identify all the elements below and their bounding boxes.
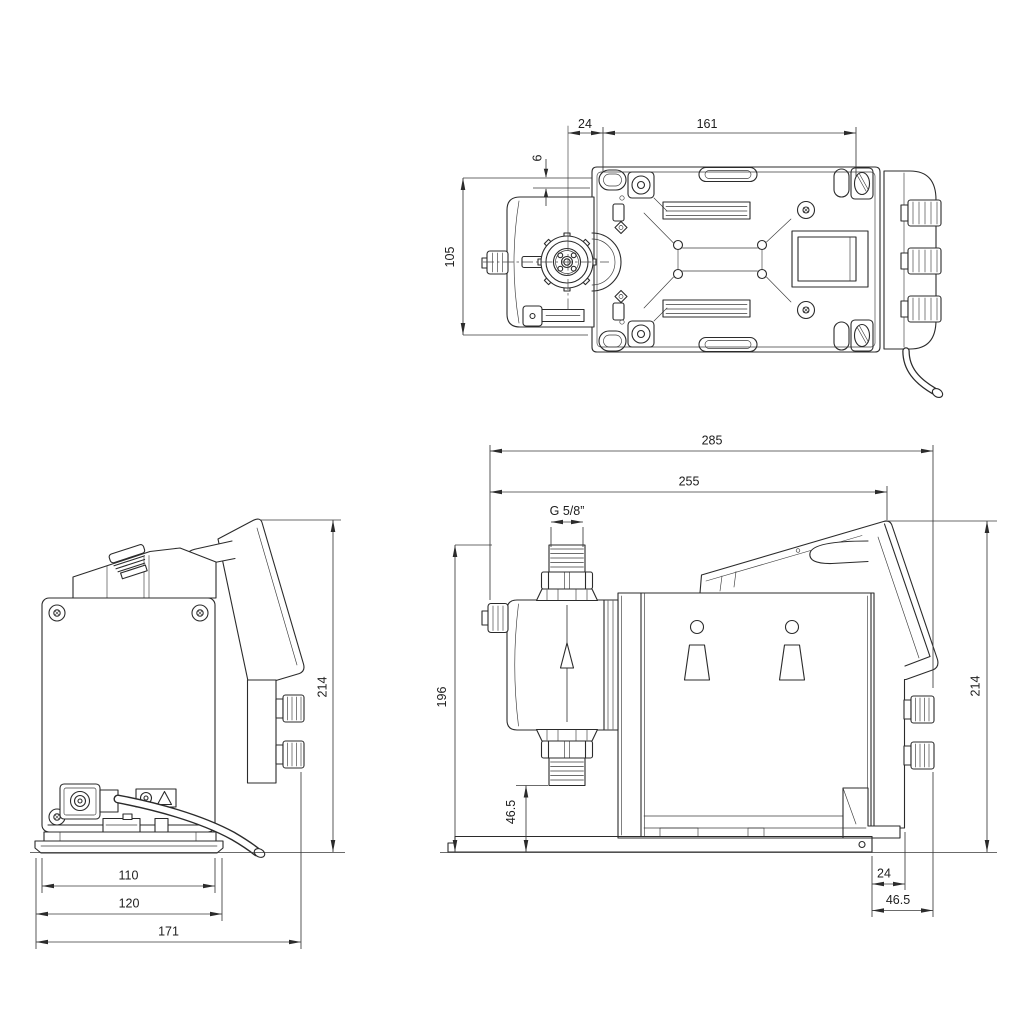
dim-214-side-label: 214 bbox=[969, 676, 983, 697]
thread-size-label: G 5/8” bbox=[550, 504, 585, 518]
signal-connector-caps bbox=[901, 200, 941, 322]
top-view: 24 161 6 105 bbox=[443, 117, 944, 399]
pump-dimensional-drawing: 24 161 6 105 bbox=[0, 0, 1024, 1024]
dosing-head bbox=[482, 545, 618, 786]
mounting-plate bbox=[592, 167, 880, 352]
pump-body bbox=[618, 593, 871, 838]
dim-171-label: 171 bbox=[158, 925, 179, 939]
dim-24-side-label: 24 bbox=[877, 867, 891, 881]
deaeration-valve-knob bbox=[482, 604, 508, 633]
suction-fitting bbox=[537, 730, 598, 786]
dim-214-back-label: 214 bbox=[316, 677, 330, 698]
dim-161-label: 161 bbox=[697, 117, 718, 131]
dim-24-label: 24 bbox=[578, 117, 592, 131]
signal-connectors-side bbox=[904, 696, 934, 769]
dim-255-label: 255 bbox=[679, 475, 700, 489]
control-panel-edge bbox=[884, 171, 941, 349]
dim-46-5-side-label: 46.5 bbox=[886, 893, 910, 907]
technical-drawing-page: 24 161 6 105 bbox=[0, 0, 1024, 1024]
discharge-fitting bbox=[537, 545, 598, 601]
dim-110-label: 110 bbox=[119, 869, 139, 883]
side-view: 285 255 G 5/8” 196 46.5 214 24 46.5 bbox=[435, 434, 997, 918]
back-view: 214 110 120 171 bbox=[30, 519, 345, 949]
signal-connectors-back bbox=[276, 695, 304, 768]
dim-285-label: 285 bbox=[702, 434, 723, 448]
dim-105-label: 105 bbox=[443, 247, 457, 268]
dim-196-label: 196 bbox=[435, 687, 449, 708]
dim-46-5-valve-label: 46.5 bbox=[504, 800, 518, 824]
power-cable-top-view bbox=[906, 351, 944, 399]
dim-120-label: 120 bbox=[119, 897, 140, 911]
dim-6-label: 6 bbox=[531, 154, 545, 161]
